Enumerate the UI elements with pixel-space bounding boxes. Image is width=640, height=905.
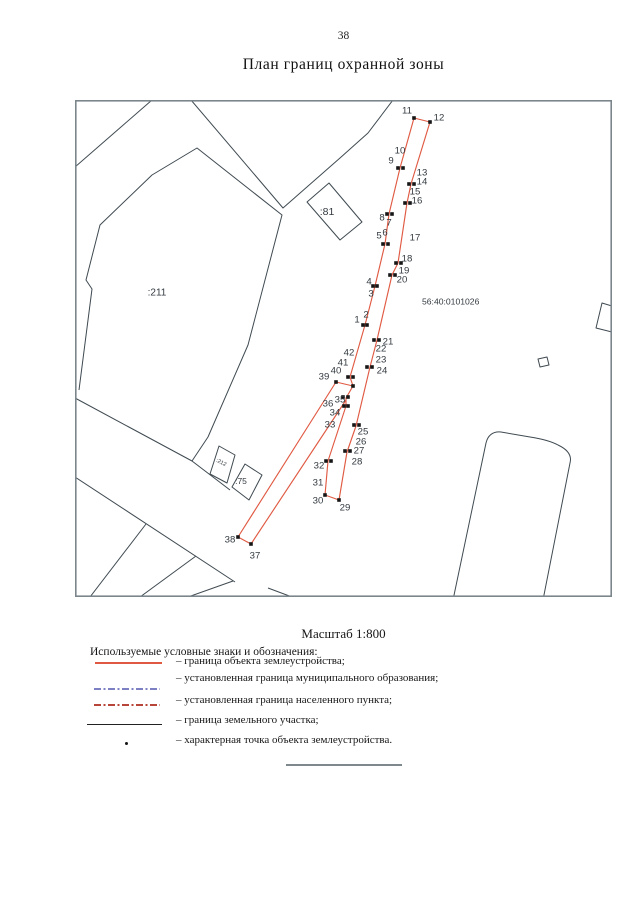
point-number-label: 1	[354, 315, 359, 326]
point-number-label: 31	[313, 478, 324, 489]
point-number-label: 39	[319, 372, 330, 383]
parcel-boundary-line	[191, 100, 393, 208]
point-number-label: 34	[330, 408, 341, 419]
point-number-label: 33	[325, 420, 336, 431]
object-boundary-layer	[238, 118, 430, 544]
survey-point-dot	[396, 166, 400, 170]
legend-swatch-parcel-boundary	[87, 724, 162, 725]
legend-item-characteristic-point: – характерная точка объекта землеустройс…	[176, 734, 392, 746]
document-page: 38 План границ охранной зоны 11121091314…	[0, 0, 640, 905]
survey-point-dot	[351, 375, 355, 379]
point-number-label: 20	[397, 275, 408, 286]
survey-point-dot	[346, 375, 350, 379]
survey-point-dot	[371, 284, 375, 288]
page-number: 38	[75, 30, 612, 42]
legend-swatch-municipal-boundary	[94, 688, 160, 690]
parcel-boundary-line	[188, 581, 233, 597]
survey-point-dot	[337, 498, 341, 502]
parcel-outline	[307, 183, 362, 240]
survey-points-layer	[236, 116, 432, 546]
labels-layer: 1112109131415168756171819204312212223244…	[148, 106, 480, 562]
survey-point-dot	[365, 323, 369, 327]
survey-point-dot	[236, 535, 240, 539]
point-number-label: 27	[354, 446, 365, 457]
survey-point-dot	[401, 166, 405, 170]
survey-point-dot	[403, 201, 407, 205]
object-boundary-line	[238, 382, 353, 544]
parcel-number-label: :212	[215, 458, 227, 468]
survey-point-dot	[329, 459, 333, 463]
survey-point-dot	[324, 459, 328, 463]
survey-point-dot	[407, 182, 411, 186]
point-number-label: 10	[395, 146, 406, 157]
parcel-boundary-line	[140, 556, 196, 597]
survey-point-dot	[334, 380, 338, 384]
survey-point-dot	[394, 261, 398, 265]
legend-swatch-object-boundary	[95, 662, 162, 664]
point-number-label: 32	[314, 461, 325, 472]
parcel-number-label: :81	[320, 206, 335, 218]
point-number-label: 4	[366, 277, 372, 288]
point-number-label: 5	[376, 231, 381, 242]
legend-item-municipal-boundary: – установленная граница муниципального о…	[176, 672, 438, 684]
point-number-label: 6	[382, 228, 387, 239]
survey-point-dot	[351, 384, 355, 388]
point-number-label: 30	[313, 496, 324, 507]
point-number-label: 3	[368, 289, 373, 300]
survey-point-dot	[372, 338, 376, 342]
point-number-label: 18	[402, 254, 413, 265]
parcel-outline	[538, 357, 549, 367]
survey-point-dot	[428, 120, 432, 124]
survey-point-dot	[352, 423, 356, 427]
survey-point-dot	[323, 493, 327, 497]
point-number-label: 22	[376, 344, 387, 355]
point-number-label: 24	[377, 366, 388, 377]
survey-point-dot	[390, 212, 394, 216]
parcel-boundary-line	[75, 477, 235, 582]
point-number-label: 38	[225, 535, 236, 546]
point-number-label: 8	[379, 213, 384, 224]
plan-map: 1112109131415168756171819204312212223244…	[75, 100, 612, 597]
survey-point-dot	[346, 404, 350, 408]
point-number-label: 2	[363, 310, 368, 321]
point-number-label: 12	[434, 113, 445, 124]
cadastral-quarter-label: 56:40:0101026	[422, 296, 480, 306]
point-number-label: 17	[410, 233, 421, 244]
scale-label: Масштаб 1:800	[75, 626, 612, 642]
survey-point-dot	[370, 365, 374, 369]
parcel-boundary-line	[90, 524, 146, 597]
survey-point-dot	[375, 284, 379, 288]
survey-point-dot	[412, 182, 416, 186]
point-number-label: 35	[335, 395, 346, 406]
legend-swatch-characteristic-point	[125, 742, 128, 745]
point-number-label: 40	[331, 366, 342, 377]
survey-point-dot	[346, 395, 350, 399]
survey-point-dot	[412, 116, 416, 120]
survey-point-dot	[343, 449, 347, 453]
legend-item-object-boundary: – граница объекта землеустройства;	[176, 655, 345, 667]
survey-point-dot	[381, 242, 385, 246]
parcel-boundary-line	[596, 303, 612, 332]
parcel-boundary-line	[75, 100, 152, 167]
survey-point-dot	[377, 338, 381, 342]
survey-point-dot	[365, 365, 369, 369]
parcel-number-label: :75	[235, 476, 247, 486]
object-boundary-line	[325, 118, 430, 500]
parcel-boundary-line	[75, 398, 230, 490]
point-number-label: 29	[340, 503, 351, 514]
point-number-label: 9	[388, 156, 393, 167]
legend-item-parcel-boundary: – граница земельного участка;	[176, 714, 319, 726]
point-number-label: 23	[376, 355, 387, 366]
survey-point-dot	[386, 242, 390, 246]
survey-point-dot	[385, 212, 389, 216]
page-title: План границ охранной зоны	[75, 56, 612, 74]
legend-item-settlement-boundary: – установленная граница населенного пунк…	[176, 694, 392, 706]
legend-swatch-settlement-boundary	[94, 704, 160, 706]
point-number-label: 28	[352, 457, 363, 468]
survey-point-dot	[249, 542, 253, 546]
parcel-boundary-line	[79, 148, 282, 461]
survey-point-dot	[388, 273, 392, 277]
survey-point-dot	[361, 323, 365, 327]
building-outline	[453, 432, 571, 597]
survey-point-dot	[348, 449, 352, 453]
point-number-label: 16	[412, 196, 423, 207]
point-number-label: 11	[402, 106, 412, 117]
signature-line	[286, 764, 402, 766]
point-number-label: 37	[250, 551, 261, 562]
parcel-number-label: :211	[148, 288, 167, 299]
